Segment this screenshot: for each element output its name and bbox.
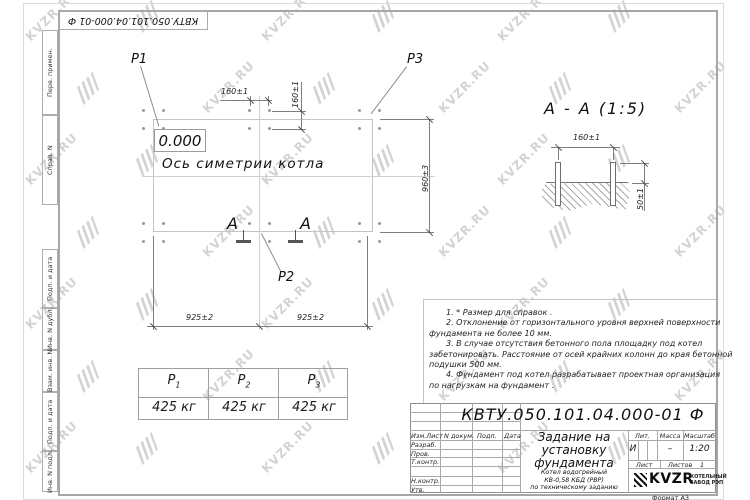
sidebar-box-podp-data-1: Подп. и дата [42, 249, 58, 308]
anchor-bolt-dot [162, 109, 165, 112]
section-letter-right: А [300, 214, 311, 233]
vertical-centerline [259, 96, 260, 330]
tb-row-utv: Утв. [411, 486, 425, 494]
load-table-header: P3 [279, 373, 349, 390]
anchor-bolt-dot [142, 240, 145, 243]
elevation-value: 0.000 [159, 132, 202, 150]
load-table-value: 425 кг [209, 400, 279, 415]
sidebar-label: Справ. N [43, 116, 57, 204]
format-label: Формат А3 [652, 494, 689, 500]
anchor-bolt-dot [162, 240, 165, 243]
sidebar-box-sprav-n: Справ. N [42, 115, 58, 205]
tb-row-razrab: Разраб. [411, 441, 437, 449]
dim-text-sec50: 50±1 [636, 188, 645, 210]
boiler-axis-label: Ось симетрии котла [162, 156, 324, 172]
anchor-bolt-dot [142, 127, 145, 130]
anchor-bolt-dot [268, 109, 271, 112]
kvzr-logo-icon [634, 473, 647, 487]
sidebar-label: Перв. примен. [43, 31, 57, 114]
anchor-bolt-dot [358, 222, 361, 225]
dim-line-160v [301, 82, 302, 130]
note-line: 1. * Размер для справок . [446, 308, 716, 318]
anchor-bolt-dot [358, 109, 361, 112]
sidebar-box-podp-data-2: Подп. и дата [42, 392, 58, 451]
load-point-label-p3: P3 [407, 52, 423, 67]
anchor-bolt-dot [142, 222, 145, 225]
elevation-mark: 0.000 [154, 129, 206, 152]
note-line: по нагрузкам на фундамент . [429, 381, 716, 391]
anchor-bolt-dot [378, 240, 381, 243]
dim-text-960: 960±3 [421, 165, 430, 192]
note-line: подушки 500 мм. [429, 360, 716, 370]
section-view-title: А - А (1:5) [544, 99, 647, 118]
anchor-bolt-dot [162, 222, 165, 225]
notes-box: 1. * Размер для справок . 2. Отклонение … [423, 299, 716, 403]
anchor-bolt-dot [248, 127, 251, 130]
kvzr-logo-text: KVZR [649, 471, 694, 487]
tb-header-izm-list: Изм.Лист [411, 432, 443, 440]
tb-lit-value: И [628, 444, 638, 454]
tb-header-podp: Подп. [477, 432, 497, 440]
tb-massa-header: Масса [657, 432, 683, 440]
dim-line-160h [220, 100, 272, 101]
anchor-bolt-dot [142, 109, 145, 112]
load-table-value: 425 кг [139, 400, 209, 415]
dim-text-925-right: 925±2 [297, 313, 324, 322]
sidebar-box-inv-dubl: Инв. N дубл. [42, 308, 58, 350]
sidebar-label: Инв. N дубл. [43, 309, 57, 349]
tb-sheets-label: Листов [668, 461, 692, 469]
ext-line [380, 119, 434, 120]
section-letter-left: А [227, 214, 238, 233]
ext-line [153, 236, 154, 330]
sidebar-label: Инв. N подл. [43, 452, 57, 491]
anchor-bolt-dot [248, 109, 251, 112]
tb-masshtab-value: 1:20 [683, 444, 716, 454]
tb-header-data: Дата [504, 432, 521, 440]
tb-sheet-label: Лист [636, 461, 652, 469]
load-point-label-p1: P1 [131, 52, 147, 67]
load-point-label-p2: P2 [278, 270, 294, 285]
anchor-bolt-right [610, 162, 616, 206]
anchor-bolt-dot [268, 222, 271, 225]
tb-sheets-value: 1 [700, 461, 704, 469]
note-line: фундамента не более 10 мм. [429, 329, 716, 339]
note-line: забетонировать. Расстояние от осей крайн… [429, 350, 716, 360]
top-left-stamp: КВТУ.050.101.04.000-01 Ф [58, 10, 208, 30]
anchor-bolt-dot [358, 240, 361, 243]
note-line: 3. В случае отсутствия бетонного пола пл… [446, 339, 716, 349]
doc-number: КВТУ.050.101.04.000-01 Ф [452, 405, 714, 424]
note-line: 4. Фундамент под котел разрабатывает про… [446, 370, 716, 380]
sidebar-box-perv-primen: Перв. примен. [42, 30, 58, 115]
dim-text-sec160: 160±1 [573, 133, 600, 142]
sidebar-box-inv-podl: Инв. N подл. [42, 451, 58, 492]
tb-header-n-dokum: N докум. [444, 432, 474, 440]
dim-line-sec160 [551, 147, 620, 148]
anchor-bolt-dot [378, 127, 381, 130]
ext-line [367, 236, 368, 330]
tb-row-prov: Пров. [411, 450, 430, 458]
dim-text-925-left: 925±2 [186, 313, 213, 322]
load-table: P1 P2 P3 425 кг 425 кг 425 кг [138, 368, 348, 420]
sidebar-label: Подп. и дата [43, 393, 57, 450]
ext-line [380, 232, 434, 233]
drawing-sheet: KVZR.RUKVZR.RUKVZR.RUKVZR.RUKVZR.RUKVZR.… [0, 0, 750, 500]
load-table-value: 425 кг [279, 400, 349, 415]
dim-text-160h: 160±1 [221, 87, 248, 96]
anchor-bolt-dot [248, 222, 251, 225]
company-name: КОТЕЛЬНЫЙ ЗАВОД РЭП [690, 474, 727, 486]
anchor-bolt-dot [378, 222, 381, 225]
anchor-bolt-dot [268, 240, 271, 243]
note-line: 2. Отклонение от горизонтального уровня … [446, 318, 716, 328]
anchor-bolt-dot [358, 127, 361, 130]
tb-row-tkontr: Т.контр. [411, 458, 439, 466]
dim-text-160v: 160±1 [291, 81, 300, 108]
section-cut-line [288, 240, 303, 243]
load-table-header: P2 [209, 373, 279, 390]
anchor-bolt-dot [378, 109, 381, 112]
load-table-header: P1 [139, 373, 209, 390]
tb-lit-header: Лит. [628, 432, 657, 440]
doc-title: Задание на установку фундамента [520, 431, 628, 470]
section-cut-line [236, 240, 251, 243]
tb-row-nkontr: Н.контр. [411, 477, 440, 485]
tb-massa-value: – [657, 444, 683, 454]
doc-subtitle: Котел водогрейный КВ-0,58 КБД (РВР) по т… [520, 469, 628, 492]
anchor-bolt-dot [268, 127, 271, 130]
sidebar-label: Взам. инв. N [43, 351, 57, 391]
sidebar-label: Подп. и дата [43, 250, 57, 307]
sidebar-box-vzam-inv: Взам. инв. N [42, 350, 58, 392]
stamp-doc-number: КВТУ.050.101.04.000-01 Ф [68, 15, 198, 26]
horizontal-centerline [143, 176, 435, 177]
tb-masshtab-header: Масштаб [683, 432, 716, 440]
anchor-bolt-left [555, 162, 561, 206]
